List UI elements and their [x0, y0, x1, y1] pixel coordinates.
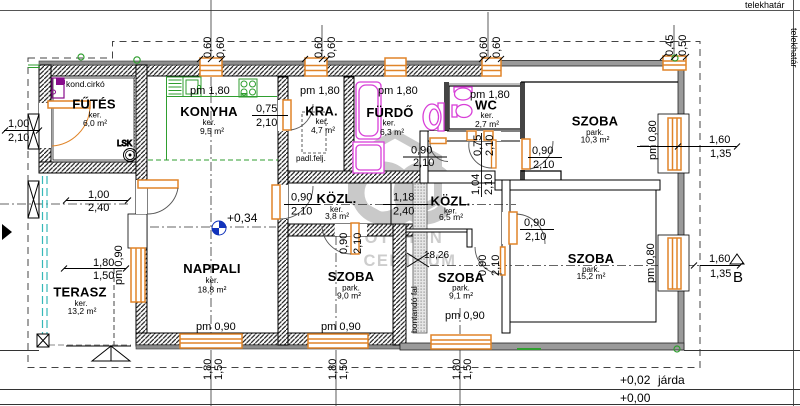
svg-text:pm 1,80: pm 1,80 [378, 85, 418, 97]
svg-text:pm 0,90: pm 0,90 [321, 321, 361, 333]
svg-text:2,40: 2,40 [393, 206, 414, 218]
svg-text:2,10: 2,10 [291, 206, 312, 218]
svg-text:pm 0,80: pm 0,80 [645, 243, 657, 283]
svg-text:pm 0,90: pm 0,90 [196, 321, 236, 333]
svg-text:10,3 m²: 10,3 m² [581, 135, 610, 145]
svg-text:6,3 m²: 6,3 m² [380, 127, 404, 137]
svg-text:+0,34: +0,34 [227, 211, 258, 225]
svg-text:2,10: 2,10 [352, 233, 364, 254]
svg-text:2,10: 2,10 [490, 255, 502, 276]
svg-text:2,7 m²: 2,7 m² [475, 119, 499, 129]
svg-text:2,10: 2,10 [484, 135, 496, 156]
svg-text:9,5 m²: 9,5 m² [200, 126, 224, 136]
svg-text:0,60: 0,60 [491, 37, 503, 58]
svg-text:1,80: 1,80 [93, 257, 114, 269]
svg-text:SZOBA: SZOBA [572, 114, 619, 129]
svg-text:2,10: 2,10 [413, 157, 434, 169]
svg-text:B: B [733, 269, 743, 286]
svg-text:0,75: 0,75 [472, 135, 484, 156]
svg-text:2,10: 2,10 [256, 117, 277, 129]
svg-text:2,10: 2,10 [525, 231, 546, 243]
svg-text:13,2 m²: 13,2 m² [68, 306, 97, 316]
svg-text:kond.cirkó: kond.cirkó [66, 79, 105, 89]
svg-text:1,50: 1,50 [93, 270, 114, 282]
svg-text:SZOBA: SZOBA [328, 269, 375, 284]
svg-text:6,0 m²: 6,0 m² [83, 118, 107, 128]
svg-text:padl.felj.: padl.felj. [296, 154, 326, 163]
svg-text:2,10: 2,10 [483, 174, 495, 195]
svg-text:2,40: 2,40 [88, 202, 109, 214]
svg-text:pm 0,80: pm 0,80 [647, 120, 659, 160]
svg-text:0,60: 0,60 [202, 37, 214, 58]
svg-text:0,75: 0,75 [256, 103, 277, 115]
svg-text:KONYHA: KONYHA [180, 104, 238, 119]
svg-text:1,50: 1,50 [338, 359, 350, 380]
svg-text:0,90: 0,90 [524, 217, 545, 229]
svg-text:1,18: 1,18 [393, 192, 414, 204]
svg-text:0,50: 0,50 [677, 35, 689, 56]
svg-text:9,1 m²: 9,1 m² [449, 291, 473, 301]
svg-text:0,60: 0,60 [326, 37, 338, 58]
svg-text:6,5 m²: 6,5 m² [439, 212, 463, 222]
svg-text:18,26: 18,26 [424, 250, 449, 261]
svg-text:1,60: 1,60 [709, 253, 730, 265]
svg-text:pm 0,90: pm 0,90 [445, 310, 485, 322]
svg-text:0,90: 0,90 [291, 192, 312, 204]
svg-text:0,90: 0,90 [338, 233, 350, 254]
svg-text:0,90: 0,90 [411, 145, 432, 157]
svg-text:1,50: 1,50 [213, 359, 225, 380]
svg-text:telekhatár: telekhatár [789, 28, 799, 68]
svg-text:0,60: 0,60 [313, 37, 325, 58]
svg-text:2,10: 2,10 [8, 132, 29, 144]
svg-text:0,60: 0,60 [478, 37, 490, 58]
svg-text:1,00: 1,00 [88, 189, 109, 201]
svg-text:járda: járda [657, 373, 685, 387]
svg-text:1,04: 1,04 [470, 174, 482, 195]
svg-text:0,90: 0,90 [532, 145, 553, 157]
svg-text:1,35: 1,35 [710, 148, 731, 160]
svg-text:0,45: 0,45 [664, 35, 676, 56]
svg-text:15,2 m²: 15,2 m² [577, 271, 606, 281]
svg-text:+0,00: +0,00 [620, 391, 651, 405]
svg-text:TERASZ: TERASZ [53, 285, 106, 300]
svg-text:FŰTÉS: FŰTÉS [72, 97, 116, 112]
svg-text:9,0 m²: 9,0 m² [337, 291, 361, 301]
svg-text:SZOBA: SZOBA [568, 251, 615, 266]
svg-text:1,60: 1,60 [709, 134, 730, 146]
svg-text:telekhatár: telekhatár [745, 0, 785, 10]
svg-text:1,00: 1,00 [8, 118, 29, 130]
svg-text:2,10: 2,10 [533, 159, 554, 171]
svg-text:KÖZL.: KÖZL. [317, 191, 357, 206]
svg-text:bontandó fal: bontandó fal [409, 286, 419, 333]
svg-text:LSK: LSK [117, 139, 133, 148]
svg-text:NAPPALI: NAPPALI [183, 261, 241, 276]
svg-text:4,7 m²: 4,7 m² [311, 125, 335, 135]
svg-text:0,60: 0,60 [215, 37, 227, 58]
svg-text:pm 1,80: pm 1,80 [300, 85, 340, 97]
svg-text:pm 0,90: pm 0,90 [113, 245, 125, 285]
svg-text:3,8 m²: 3,8 m² [325, 211, 349, 221]
svg-text:18,8 m²: 18,8 m² [198, 285, 227, 295]
svg-text:pm 1,80: pm 1,80 [190, 85, 230, 97]
svg-text:+0,02: +0,02 [620, 373, 651, 387]
svg-text:1,35: 1,35 [710, 268, 731, 280]
svg-text:1,50: 1,50 [462, 359, 474, 380]
